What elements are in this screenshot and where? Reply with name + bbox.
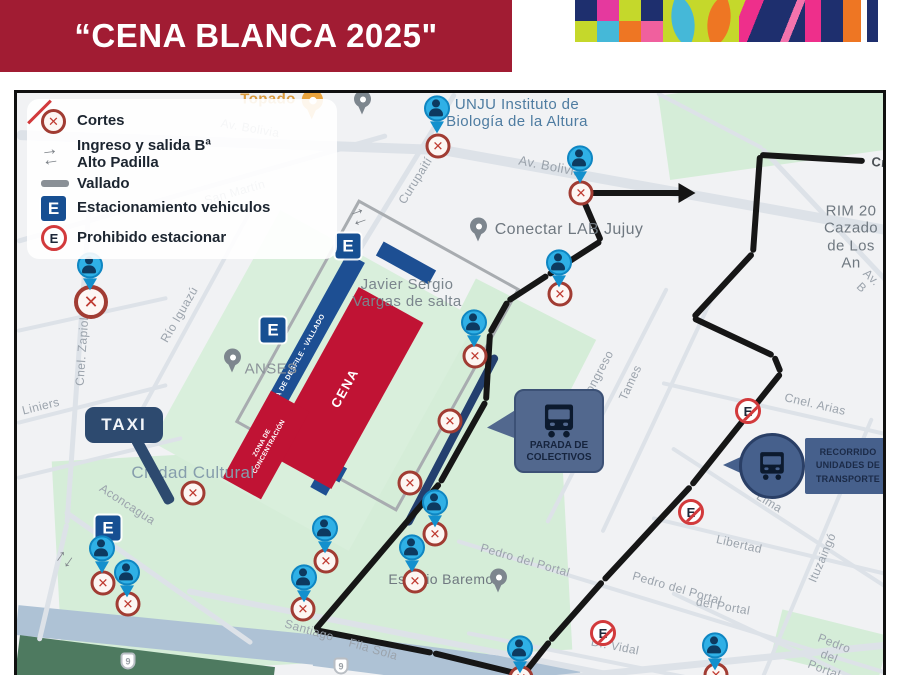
road-closure-icon: ✕ (41, 109, 66, 134)
street-line (662, 381, 886, 440)
taxi-bubble: TAXI (85, 407, 163, 443)
route-shield-icon: 9 (334, 658, 349, 675)
legend-item-prohibido: E Prohibido estacionar (41, 225, 325, 251)
no-parking-icon: E (41, 225, 67, 251)
poi-label-unju: UNJU Instituto de Biología de la Altura (446, 96, 588, 131)
person-pin-icon (113, 559, 143, 600)
person-pin-icon (701, 632, 731, 673)
route-line (692, 315, 776, 358)
street-line (652, 516, 886, 580)
route-line (691, 251, 755, 320)
street-line (600, 297, 714, 534)
double-arrow-icon: →← (40, 144, 61, 166)
person-pin-icon (506, 635, 536, 675)
person-pin-icon (566, 145, 596, 186)
street-label: Cnel. Zapiola (73, 310, 92, 387)
road-closure-icon: ✕ (426, 134, 451, 159)
barrier-dash-icon (41, 180, 69, 187)
logo-bar (821, 0, 843, 42)
poi-pin-icon (224, 349, 242, 374)
page-title: “CENA BLANCA 2025" (74, 17, 437, 55)
recorrido-label: RECORRIDO UNIDADES DE TRANSPORTE (816, 446, 880, 487)
route-line (581, 190, 683, 196)
street-label: Tames (617, 363, 645, 403)
person-pin-icon (290, 564, 320, 605)
person-pin-icon (423, 95, 453, 136)
road-closure-icon: ✕ (438, 409, 463, 434)
street-label: Libertad (715, 533, 763, 557)
legend-label: Prohibido estacionar (77, 230, 226, 247)
logo-bar (867, 0, 878, 42)
poi-pin-icon (470, 218, 488, 243)
parada-colectivos-bubble: PARADA DE COLECTIVOS (514, 389, 604, 473)
person-pin-icon (545, 249, 575, 290)
bus-icon (755, 450, 789, 482)
park-area (658, 90, 886, 180)
legend-item-ingreso-salida: →← Ingreso y salida Bª Alto Padilla (41, 138, 325, 172)
brand-logo (575, 0, 878, 42)
legend-item-vallado: Vallado (41, 176, 325, 193)
poi-pin-icon (354, 91, 372, 116)
bus-icon (539, 402, 579, 440)
legend-item-estacionamiento: E Estacionamiento vehiculos (41, 196, 325, 221)
parada-label: PARADA DE COLECTIVOS (526, 440, 591, 464)
route-arrowhead-icon (679, 183, 696, 203)
street-label: Cr (871, 155, 886, 171)
parking-icon: E (261, 318, 286, 343)
logo-squares (575, 0, 663, 42)
legend-item-cortes: ✕ Cortes (41, 109, 325, 134)
legend-label: Cortes (77, 113, 125, 130)
parking-icon: E (41, 196, 66, 221)
logo-bar (805, 0, 821, 42)
map-legend: ✕ Cortes →← Ingreso y salida Bª Alto Pad… (27, 99, 337, 259)
poi-label-rim20: RIM 20 Cazado de Los An (824, 203, 878, 272)
road-closure-icon: ✕ (181, 481, 206, 506)
no-parking-icon: E (678, 499, 704, 525)
poi-pin-icon (490, 569, 508, 594)
person-pin-icon (460, 309, 490, 350)
logo-bar (843, 0, 861, 42)
logo-leaves (663, 0, 739, 42)
poi-label-javier-sergio: Javier Sergio Vargas de salta (352, 276, 461, 311)
road-closure-icon: ✕ (398, 471, 423, 496)
poi-label-conectar-lab: Conectar LAB Jujuy (495, 221, 644, 239)
logo-diagonals (739, 0, 805, 42)
person-pin-icon (311, 515, 341, 556)
legend-label: Vallado (77, 176, 130, 193)
cena-label: CENA (328, 365, 363, 410)
event-map: ZONA DE DESFILE - VALLADO ZONA DE DESFIL… (14, 90, 886, 675)
legend-label: Ingreso y salida Bª Alto Padilla (77, 138, 211, 172)
no-parking-icon: E (735, 398, 761, 424)
parking-icon: E (336, 234, 361, 259)
title-banner: “CENA BLANCA 2025" (0, 0, 512, 72)
legend-label: Estacionamiento vehiculos (77, 200, 270, 217)
recorrido-bus-bubble (739, 433, 805, 499)
no-parking-icon: E (590, 620, 616, 646)
person-pin-icon (398, 534, 428, 575)
route-shield-icon: 9 (121, 653, 136, 670)
taxi-label: TAXI (101, 415, 146, 435)
person-pin-icon (421, 489, 451, 530)
recorrido-label-box: RECORRIDO UNIDADES DE TRANSPORTE (805, 438, 886, 494)
poi-label-anses: ANSES (245, 360, 298, 377)
